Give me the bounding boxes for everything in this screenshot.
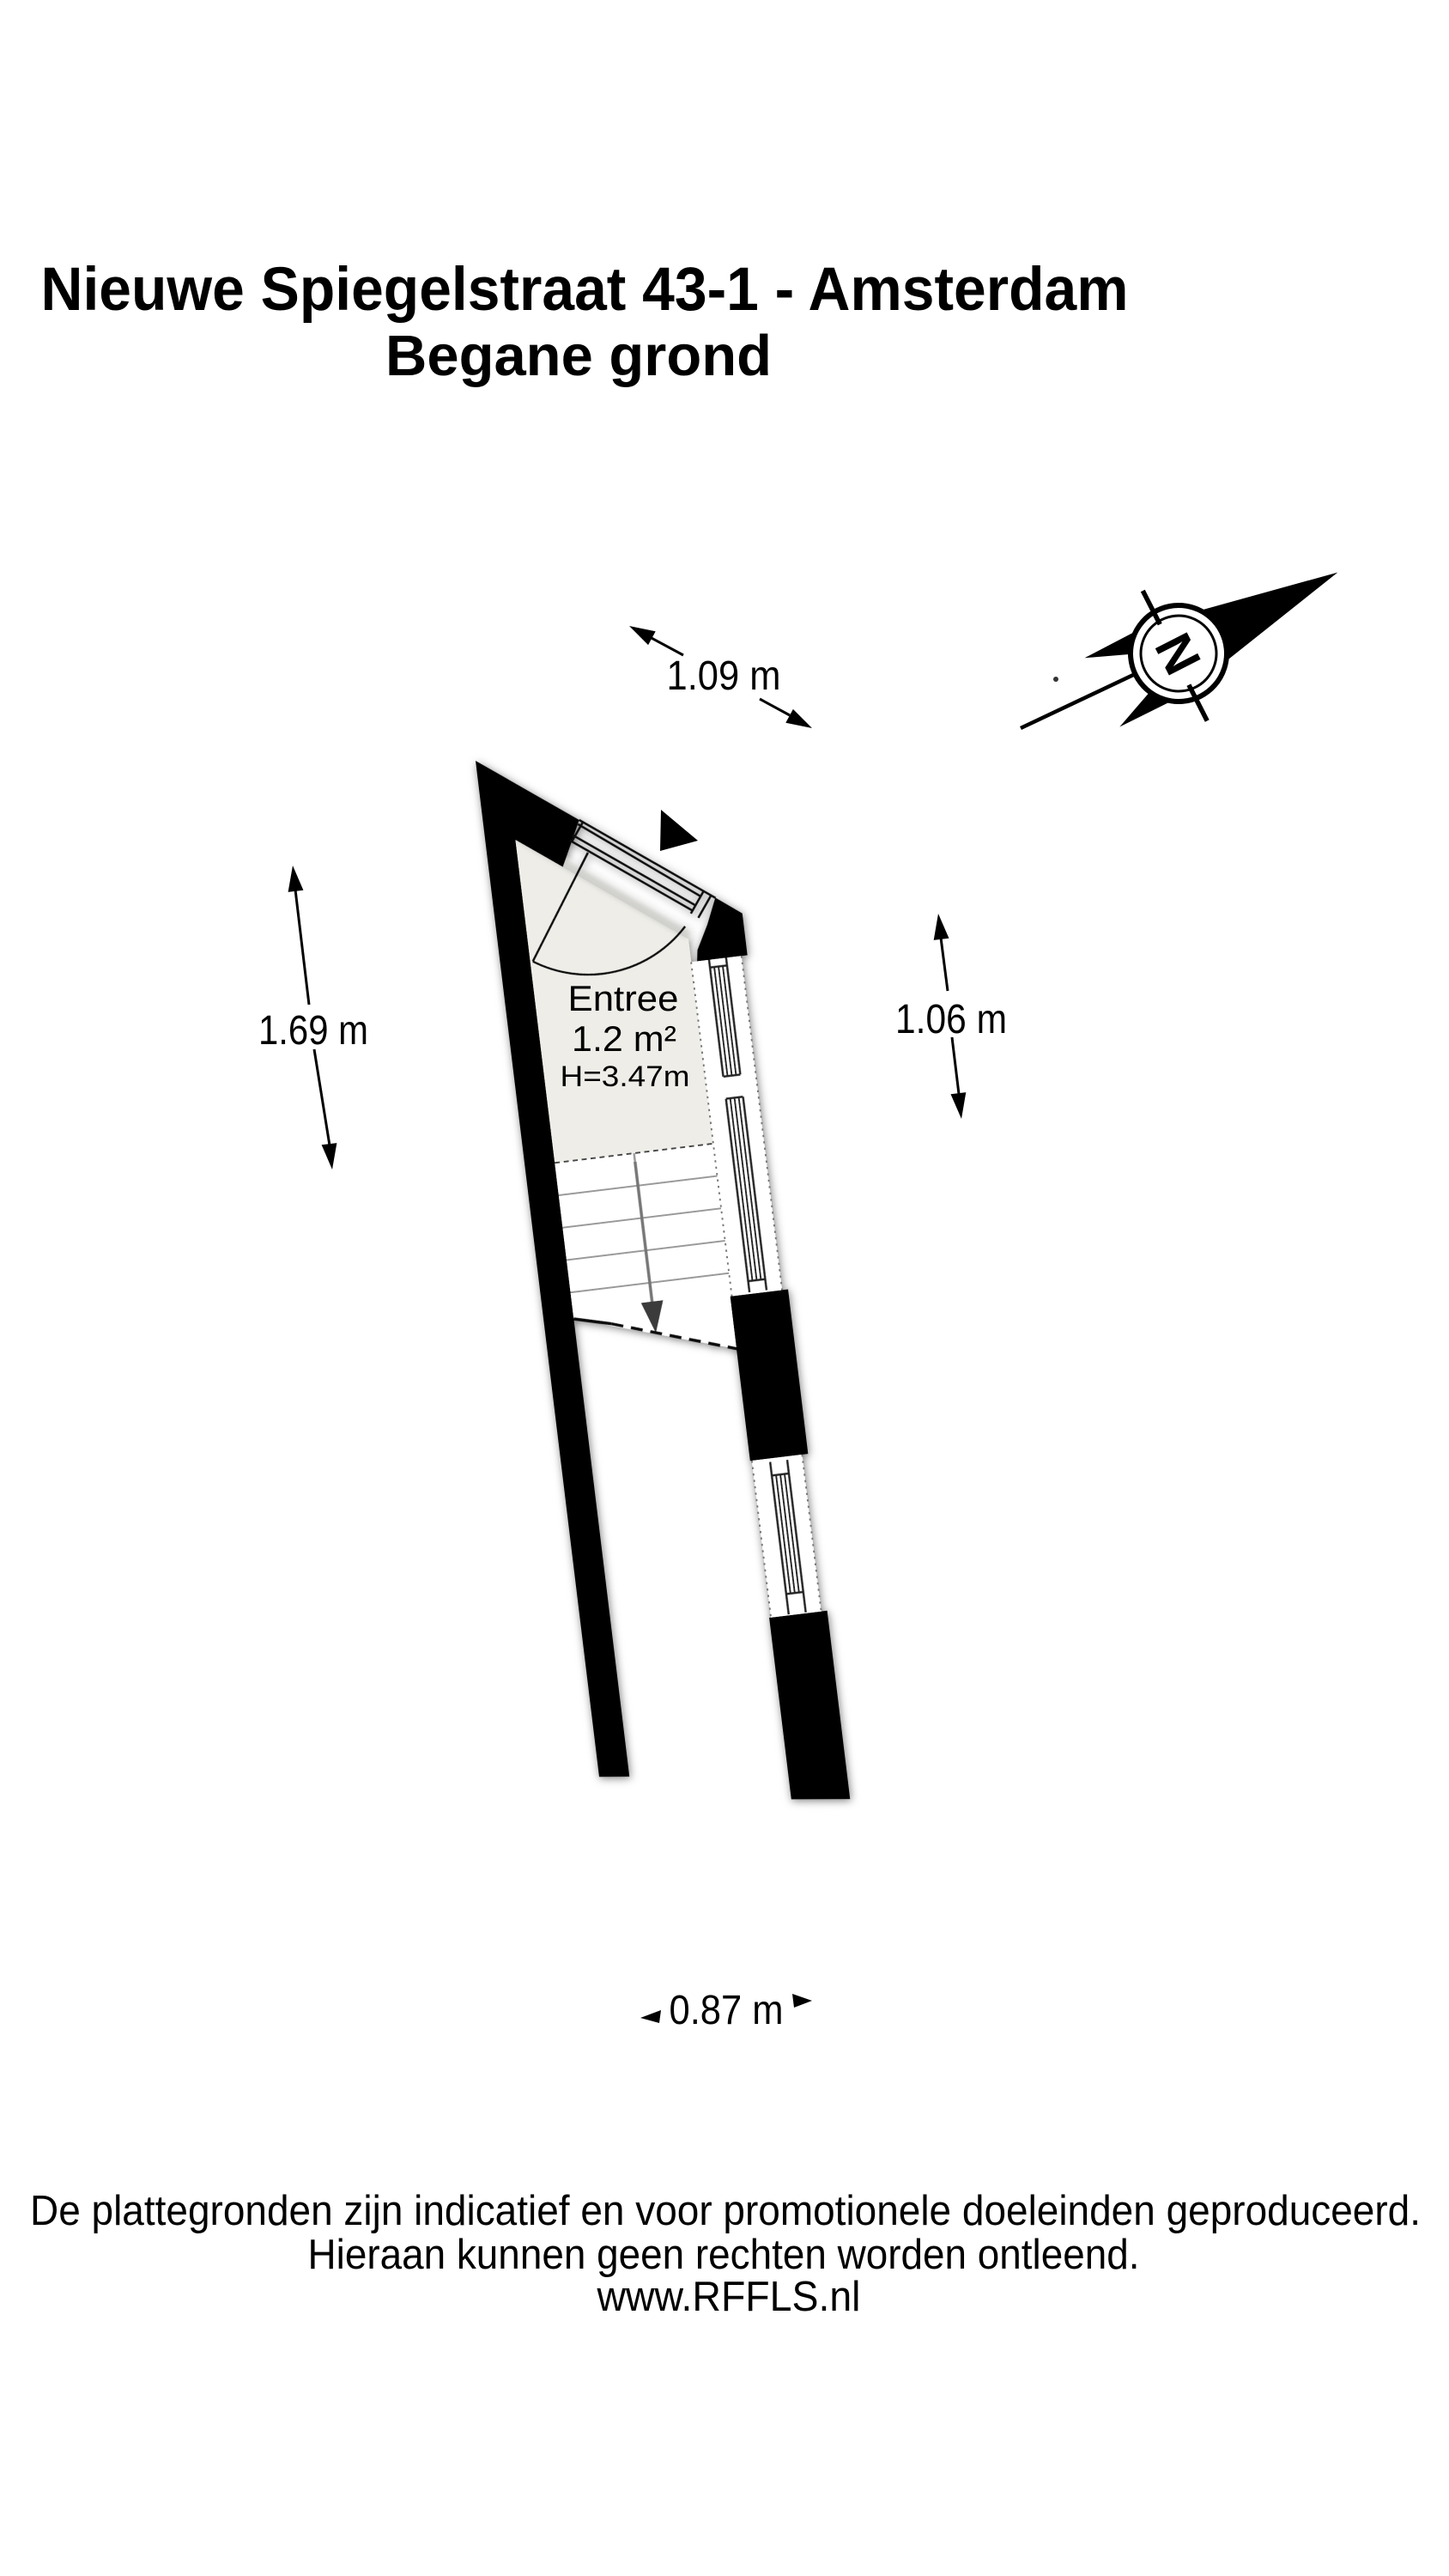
svg-text:H=3.47m: H=3.47m — [561, 1060, 690, 1093]
svg-text:0.87 m: 0.87 m — [670, 1988, 784, 2033]
svg-text:www.RFFLS.nl: www.RFFLS.nl — [597, 2274, 861, 2320]
svg-text:1.09 m: 1.09 m — [667, 653, 781, 699]
svg-text:1.06 m: 1.06 m — [895, 997, 1007, 1042]
svg-text:1.69 m: 1.69 m — [258, 1008, 368, 1054]
svg-text:Entree: Entree — [568, 978, 679, 1018]
svg-text:Begane grond: Begane grond — [385, 324, 772, 388]
svg-text:Nieuwe Spiegelstraat 43-1 - Am: Nieuwe Spiegelstraat 43-1 - Amsterdam — [41, 256, 1129, 324]
svg-text:Hieraan kunnen geen rechten wo: Hieraan kunnen geen rechten worden ontle… — [308, 2232, 1140, 2278]
svg-text:1.2 m²: 1.2 m² — [572, 1018, 676, 1059]
svg-text:De plattegronden zijn indicati: De plattegronden zijn indicatief en voor… — [30, 2188, 1421, 2234]
